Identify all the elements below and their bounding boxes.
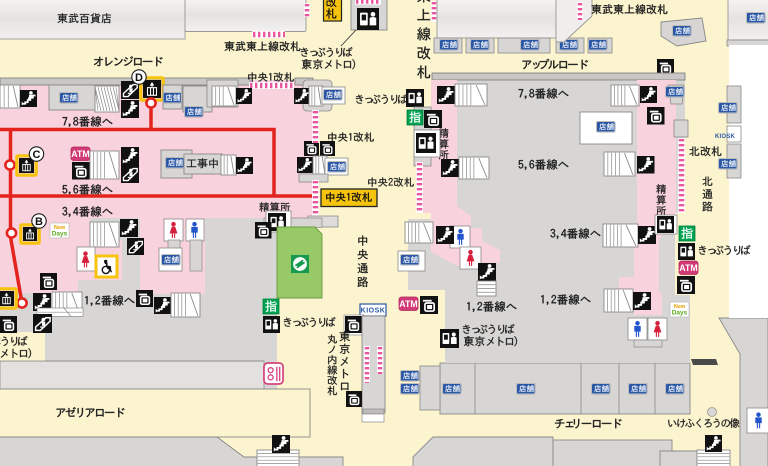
svg-text:ATM: ATM: [679, 263, 697, 273]
svg-text:D: D: [135, 72, 143, 84]
svg-text:KIOSK: KIOSK: [715, 134, 735, 140]
svg-text:Days: Days: [672, 310, 688, 317]
svg-text:B: B: [35, 216, 43, 228]
svg-text:KIOSK: KIOSK: [361, 308, 386, 315]
svg-text:ATM: ATM: [71, 149, 89, 159]
svg-text:C: C: [33, 149, 41, 161]
svg-text:Days: Days: [52, 231, 68, 238]
svg-text:ATM: ATM: [399, 299, 417, 309]
